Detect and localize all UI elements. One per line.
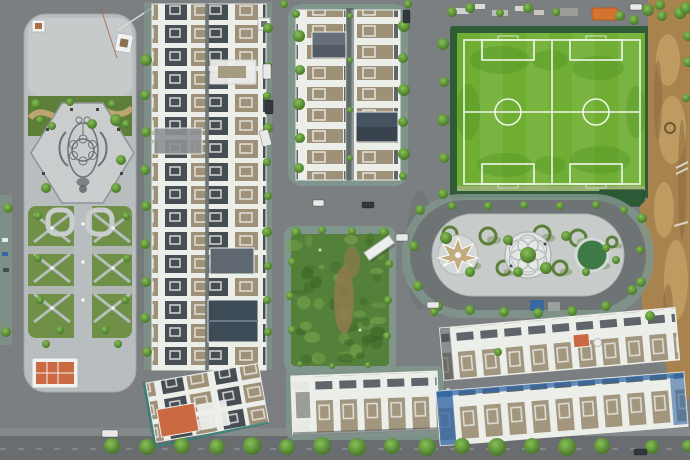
tree [286,292,294,300]
tree [552,8,560,16]
tree [111,183,121,193]
roof-terrace [218,66,246,78]
tree [494,348,502,356]
weed-clump [344,235,357,245]
tree [141,277,151,287]
tree [294,163,304,173]
turf-shade [532,50,568,70]
weed-clump [370,268,383,275]
tree [437,38,449,50]
tree [533,308,543,318]
weed-clump [310,276,322,288]
green-circle-lawn [576,239,608,271]
plaza-lower-garden [28,206,132,338]
orange-safety-canopy [573,333,590,347]
tree [602,244,610,252]
tree [465,305,475,315]
weed-clump [353,310,366,317]
tree [636,246,644,254]
plaza-kiosk-nw [32,20,45,32]
weed-clump [300,321,312,331]
rowhouses-bottom-center [286,366,454,440]
tree [437,114,449,126]
inner-lane [346,8,354,180]
tree [513,267,523,277]
parked-motorbike [3,268,9,272]
tree [439,77,449,87]
weed-clump [371,336,383,349]
tree [140,54,152,66]
car [634,449,647,455]
tree [629,15,639,25]
tree [101,326,109,334]
tree [642,4,654,16]
tree [439,153,449,163]
tree [499,307,509,317]
weed-clump [304,332,320,343]
tree [262,227,272,237]
tree [347,57,353,63]
white-roof-unit [196,399,230,430]
tree [399,172,407,180]
tree [601,301,611,311]
weed-clump [372,302,386,308]
tree [430,308,438,316]
tree [140,165,150,175]
tree [108,100,116,108]
weed-clump [297,296,311,309]
tree [263,92,271,100]
tree [465,3,475,13]
pitched-slate-roof [312,32,346,58]
tree [615,11,625,21]
tree [415,205,425,215]
tree [409,241,419,251]
tree [116,155,126,165]
tree [279,439,295,455]
tree [280,0,288,8]
tree [682,94,690,102]
tree [385,260,393,268]
tree [140,239,150,249]
tree [645,311,655,321]
car [313,200,324,206]
tree [438,189,448,199]
dirt-patch [654,182,674,238]
tree [66,98,74,106]
row-east [352,10,400,180]
tree [121,296,129,304]
tree [348,227,356,235]
tree [636,277,646,287]
tree [567,306,577,316]
tree [114,340,122,348]
hedge-fill [560,269,573,276]
tree [384,296,392,304]
tree [36,296,44,304]
car [265,100,273,114]
tree [3,203,13,213]
townhouse-strip-left [144,2,272,446]
weed-clump [344,339,355,346]
tree [41,183,51,193]
rowhouse-column-west [152,4,206,370]
tree [348,438,366,456]
tree [293,98,305,110]
tree [104,438,120,454]
tree [561,231,571,241]
turf-shade [534,156,566,174]
tree [627,285,637,295]
tree [594,438,610,454]
tree [398,84,410,96]
tree [655,0,665,10]
tree [520,201,528,209]
orange-roof-unit [157,403,199,437]
tree [264,192,272,200]
tree [347,155,353,161]
tree [263,158,271,166]
scene-canvas [0,0,690,460]
tree [288,326,296,334]
weed-clump [312,352,326,364]
weed-clump [338,354,354,363]
tree [488,438,506,456]
hedge-fill [614,244,623,249]
tree [620,206,628,214]
weed-clump [359,297,367,305]
aerial-photo [0,0,690,460]
tree [347,13,353,19]
soccer-field [450,4,650,206]
tree [263,296,271,304]
tree [418,438,436,456]
car [102,430,118,437]
tree [447,7,457,17]
weed-clump [355,352,365,359]
tree [520,247,536,263]
tree [293,30,305,42]
tree [637,213,647,223]
weed-clump [304,264,315,273]
tree [297,361,303,367]
tree [404,0,412,8]
tree [110,114,122,126]
tree [263,23,273,33]
tree [291,227,301,237]
turf-shade [477,153,533,177]
pitched-navy-roof [356,112,398,142]
tree [141,127,151,137]
tree [36,116,44,124]
tree [48,122,56,130]
weed-clump [314,298,325,309]
tree [209,439,225,455]
tree [56,326,64,334]
weed-clump [370,317,386,324]
tree [87,119,97,129]
tree [141,201,151,211]
weed-clump [319,265,325,269]
tree [31,99,41,109]
tree [313,437,331,455]
car [403,10,410,23]
tree [329,363,335,369]
tree [558,438,576,456]
tree [556,202,564,210]
tree [484,202,492,210]
tree [139,439,155,455]
tree [383,332,391,340]
turf-shade [570,146,630,174]
tree [582,268,590,276]
dirt-track [654,60,662,140]
weed-clump [361,318,370,327]
tree [365,362,371,368]
tree [612,256,620,264]
tree [503,235,513,245]
tree [496,9,504,17]
tree [34,254,42,262]
tree [264,262,272,270]
tree [123,254,131,262]
tree [523,3,533,13]
tree [454,438,470,454]
slate-roof-unit [210,248,254,274]
tree [347,107,353,113]
tree [140,313,150,323]
grey-shed [548,302,560,311]
tree [42,340,50,348]
grey-tarp-roof [154,128,202,154]
tree [413,281,423,291]
tree [384,438,400,454]
car [263,64,271,79]
debris [319,249,322,252]
tree [657,11,667,21]
tree [122,212,130,220]
car [630,4,642,10]
tree [122,120,130,128]
orange-canopy [592,8,618,20]
car [396,234,408,241]
tree [34,212,42,220]
hedge-fill [487,236,501,244]
plaza-kiosk-ne [115,33,134,54]
parked-motorbike [2,238,8,242]
water-tank [593,338,602,347]
tree [398,53,408,63]
end-unit-court [296,392,311,418]
tree [140,90,150,100]
bare-soil [344,246,360,278]
tree [524,438,540,454]
car [427,302,439,308]
debris [359,329,362,332]
car [362,202,374,208]
tree [288,258,296,266]
parked-motorbike [2,252,8,256]
tree [243,437,261,455]
tree [142,347,152,357]
tree [440,232,452,244]
weed-clump [367,233,375,245]
tree [295,133,305,143]
tree [295,65,305,75]
tree [540,262,552,274]
tree [398,117,408,127]
tree [398,148,410,160]
tree [264,328,272,336]
plaza-orange-pavilion [32,358,78,388]
tree [592,201,600,209]
tree [1,327,11,337]
tree [379,227,389,237]
tree [292,10,300,18]
weed-clump [305,235,312,248]
tree [448,202,456,210]
tree [318,226,326,234]
weed-clump [285,240,303,251]
tree [465,267,475,277]
tree [174,438,190,454]
